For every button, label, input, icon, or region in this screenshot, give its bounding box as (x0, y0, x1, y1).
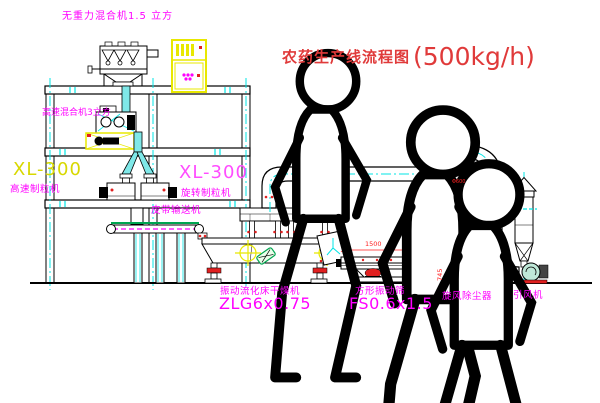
label-gravity-free-mixer: 无重力混合机1.5 立方 (62, 12, 173, 22)
control-cabinet-top (172, 40, 206, 92)
conveyor-legs (134, 233, 185, 283)
dryer-legs (205, 263, 327, 283)
flow-diagram-canvas: 无重力混合机1.5 立方 农药生产线流程图 (500kg/h) 高速混合机3立方… (0, 0, 600, 403)
label-cyclone-size: Φ600 (452, 180, 465, 185)
dimension-screen-height: 745 (437, 269, 444, 281)
label-granulator-left: 高速制粒机 (10, 185, 60, 195)
label-belt-conveyor: 皮带输送机 (151, 206, 201, 216)
belt-conveyor (107, 223, 204, 234)
gravity-free-mixer (88, 42, 158, 86)
label-granulator-right-model: XL-300 (179, 164, 248, 182)
label-cyclone: 旋风除尘器 (442, 292, 492, 302)
diagram-title: 农药生产线流程图 (500kg/h) (282, 42, 535, 71)
label-screen-model: FS0.6x1.5 (349, 296, 433, 312)
title-capacity: (500kg/h) (413, 42, 535, 71)
label-high-speed-mixer: 高速混合机3立方 (42, 109, 111, 118)
title-text: 农药生产线流程图 (282, 46, 410, 67)
dimension-screen-length: 1500 (365, 241, 382, 248)
label-dryer-model: ZLG6x0.75 (219, 296, 311, 312)
label-granulator-right: 旋转制粒机 (181, 189, 231, 199)
down-duct (131, 208, 143, 224)
granulator-right (141, 183, 177, 200)
label-granulator-left-model: XL-300 (13, 161, 82, 179)
feed-pipe-top (122, 86, 130, 112)
granulator-left (99, 183, 135, 200)
label-fan: 引风机 (513, 291, 543, 301)
